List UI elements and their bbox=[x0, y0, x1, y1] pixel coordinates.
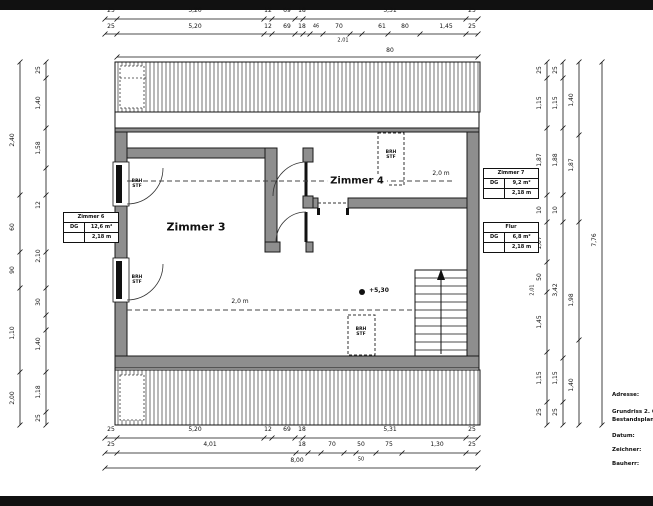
dim-label: 18 bbox=[298, 427, 306, 433]
room-table-height: 2,18 m bbox=[505, 243, 538, 252]
dim-label: 80 bbox=[386, 48, 394, 54]
dim-label: 5,20 bbox=[188, 427, 201, 433]
dim-label: 10 bbox=[553, 206, 559, 214]
dim-label: 10 bbox=[537, 206, 543, 214]
dim-label: 5,31 bbox=[383, 8, 396, 14]
dim-label: 1,45 bbox=[537, 315, 543, 328]
dim-label: 60 bbox=[10, 223, 16, 231]
brh-box-label-1: BRH STF bbox=[386, 150, 397, 160]
dim-label: 1,15 bbox=[537, 371, 543, 384]
dim-label: 1,45 bbox=[439, 24, 452, 30]
room-table-flur: Flur DG 6,8 m² 2,18 m bbox=[483, 222, 539, 253]
dim-total-label: 8,00 bbox=[290, 458, 303, 464]
dim-total-label: 7,76 bbox=[592, 233, 598, 246]
dim-label: 2,00 bbox=[10, 391, 16, 404]
dim-label: 1,87 bbox=[537, 153, 543, 166]
dim-label: 1,30 bbox=[430, 442, 443, 448]
dim-label: 1,18 bbox=[36, 385, 42, 398]
dim-sub-label: 2,01 bbox=[337, 39, 348, 44]
brh-box-label-2: BRH STF bbox=[356, 327, 367, 337]
title-block-adresse: Adresse: bbox=[612, 392, 639, 398]
dim-label: 69 bbox=[283, 427, 291, 433]
window-brh-label-2: BRH STF bbox=[132, 275, 143, 285]
dim-label: 25 bbox=[36, 66, 42, 74]
window-brh-label-1: BRH STF bbox=[132, 179, 143, 189]
dim-label: 4,01 bbox=[203, 442, 216, 448]
room-table-area: 6,8 m² bbox=[505, 233, 538, 242]
dim-label: 50 bbox=[537, 273, 543, 281]
dim-label: 70 bbox=[335, 24, 343, 30]
dim-label: 25 bbox=[107, 8, 115, 14]
dim-label: 30 bbox=[36, 298, 42, 306]
dim-label: 12 bbox=[264, 8, 272, 14]
title-block-zeichner: Zeichner: bbox=[612, 447, 641, 453]
dim-label: 46 bbox=[313, 25, 319, 30]
title-block-title: Grundriss 2. OG bbox=[612, 409, 653, 415]
dim-label: 25 bbox=[468, 427, 476, 433]
dim-label: 1,15 bbox=[553, 96, 559, 109]
room-table-area: 12,6 m² bbox=[85, 223, 118, 232]
dim-label: 75 bbox=[385, 442, 393, 448]
level-marker-icon bbox=[359, 289, 365, 295]
dim-label: 5,31 bbox=[383, 427, 396, 433]
height-line-label-lower: 2,0 m bbox=[231, 299, 248, 305]
room-table-floor: DG bbox=[64, 223, 85, 232]
room-table-zimmer-7: Zimmer 7 DG 9,2 m² 2,18 m bbox=[483, 168, 539, 199]
room-label-zimmer-3: Zimmer 3 bbox=[166, 221, 225, 234]
room-table-floor: DG bbox=[484, 179, 505, 188]
dim-label: 69 bbox=[283, 24, 291, 30]
brh-dashed-boxes bbox=[348, 133, 404, 355]
dim-sub-label: 50 bbox=[358, 458, 364, 463]
dim-label: 1,88 bbox=[553, 153, 559, 166]
dim-label: 1,15 bbox=[537, 96, 543, 109]
dim-label: 2,40 bbox=[10, 133, 16, 146]
title-block-datum: Datum: bbox=[612, 433, 635, 439]
dim-label: 25 bbox=[468, 24, 476, 30]
dim-label: 25 bbox=[107, 427, 115, 433]
dim-label: 1,10 bbox=[10, 326, 16, 339]
dim-label: 61 bbox=[378, 24, 386, 30]
title-block-bauherr: Bauherr: bbox=[612, 461, 639, 467]
title-block-subtitle: Bestandsplan, M 1:50 bbox=[612, 417, 653, 423]
top-hatch-band bbox=[115, 62, 480, 112]
room-label-zimmer-4: Zimmer 4 bbox=[327, 176, 387, 187]
dim-label: 18 bbox=[298, 24, 306, 30]
level-marker-label: +5,30 bbox=[369, 288, 389, 294]
dim-label: 1,98 bbox=[569, 293, 575, 306]
dim-label: 1,40 bbox=[36, 337, 42, 350]
dim-label: 12 bbox=[36, 201, 42, 209]
dim-label: 25 bbox=[553, 66, 559, 74]
dim-label: 90 bbox=[10, 266, 16, 274]
dim-label: 5,20 bbox=[188, 8, 201, 14]
dim-label: 5,20 bbox=[188, 24, 201, 30]
dim-label: 25 bbox=[107, 442, 115, 448]
room-table-zimmer-6: Zimmer 6 DG 12,6 m² 2,18 m bbox=[63, 212, 119, 243]
dim-label: 69 bbox=[283, 8, 291, 14]
dim-label: 25 bbox=[107, 24, 115, 30]
floor-plan-sheet: Zimmer 3 Zimmer 4 2,0 m 2,0 m +5,30 BRH … bbox=[0, 0, 653, 506]
dim-label: 1,40 bbox=[36, 96, 42, 109]
dim-label: 1,40 bbox=[569, 93, 575, 106]
dim-label: 12 bbox=[264, 427, 272, 433]
dim-label: 12 bbox=[264, 24, 272, 30]
staircase bbox=[415, 269, 467, 356]
dim-label: 50 bbox=[357, 442, 365, 448]
room-table-height: 2,18 m bbox=[505, 189, 538, 198]
dim-label: 1,58 bbox=[36, 141, 42, 154]
dim-label: 80 bbox=[401, 24, 409, 30]
room-table-title: Zimmer 6 bbox=[64, 213, 118, 223]
dim-label: 1,15 bbox=[553, 371, 559, 384]
dim-label: 2,10 bbox=[36, 249, 42, 262]
dim-label: 25 bbox=[553, 408, 559, 416]
room-table-height: 2,18 m bbox=[85, 233, 118, 242]
room-table-area: 9,2 m² bbox=[505, 179, 538, 188]
dim-label: 18 bbox=[298, 442, 306, 448]
dim-label: 25 bbox=[36, 414, 42, 422]
plan-linework bbox=[0, 0, 653, 506]
dim-label: 70 bbox=[328, 442, 336, 448]
dim-sub-label: 2,01 bbox=[531, 284, 536, 295]
dim-label: 25 bbox=[537, 66, 543, 74]
room-table-floor: DG bbox=[484, 233, 505, 242]
dim-label: 25 bbox=[468, 442, 476, 448]
dim-label: 1,40 bbox=[569, 378, 575, 391]
dim-label: 3,42 bbox=[553, 283, 559, 296]
dim-label: 1,87 bbox=[569, 158, 575, 171]
dim-label: 25 bbox=[537, 408, 543, 416]
room-table-title: Flur bbox=[484, 223, 538, 233]
room-table-title: Zimmer 7 bbox=[484, 169, 538, 179]
dim-label: 25 bbox=[468, 8, 476, 14]
dim-label: 18 bbox=[298, 8, 306, 14]
bottom-hatch-band bbox=[115, 370, 480, 425]
height-line-label-upper: 2,0 m bbox=[432, 171, 449, 177]
